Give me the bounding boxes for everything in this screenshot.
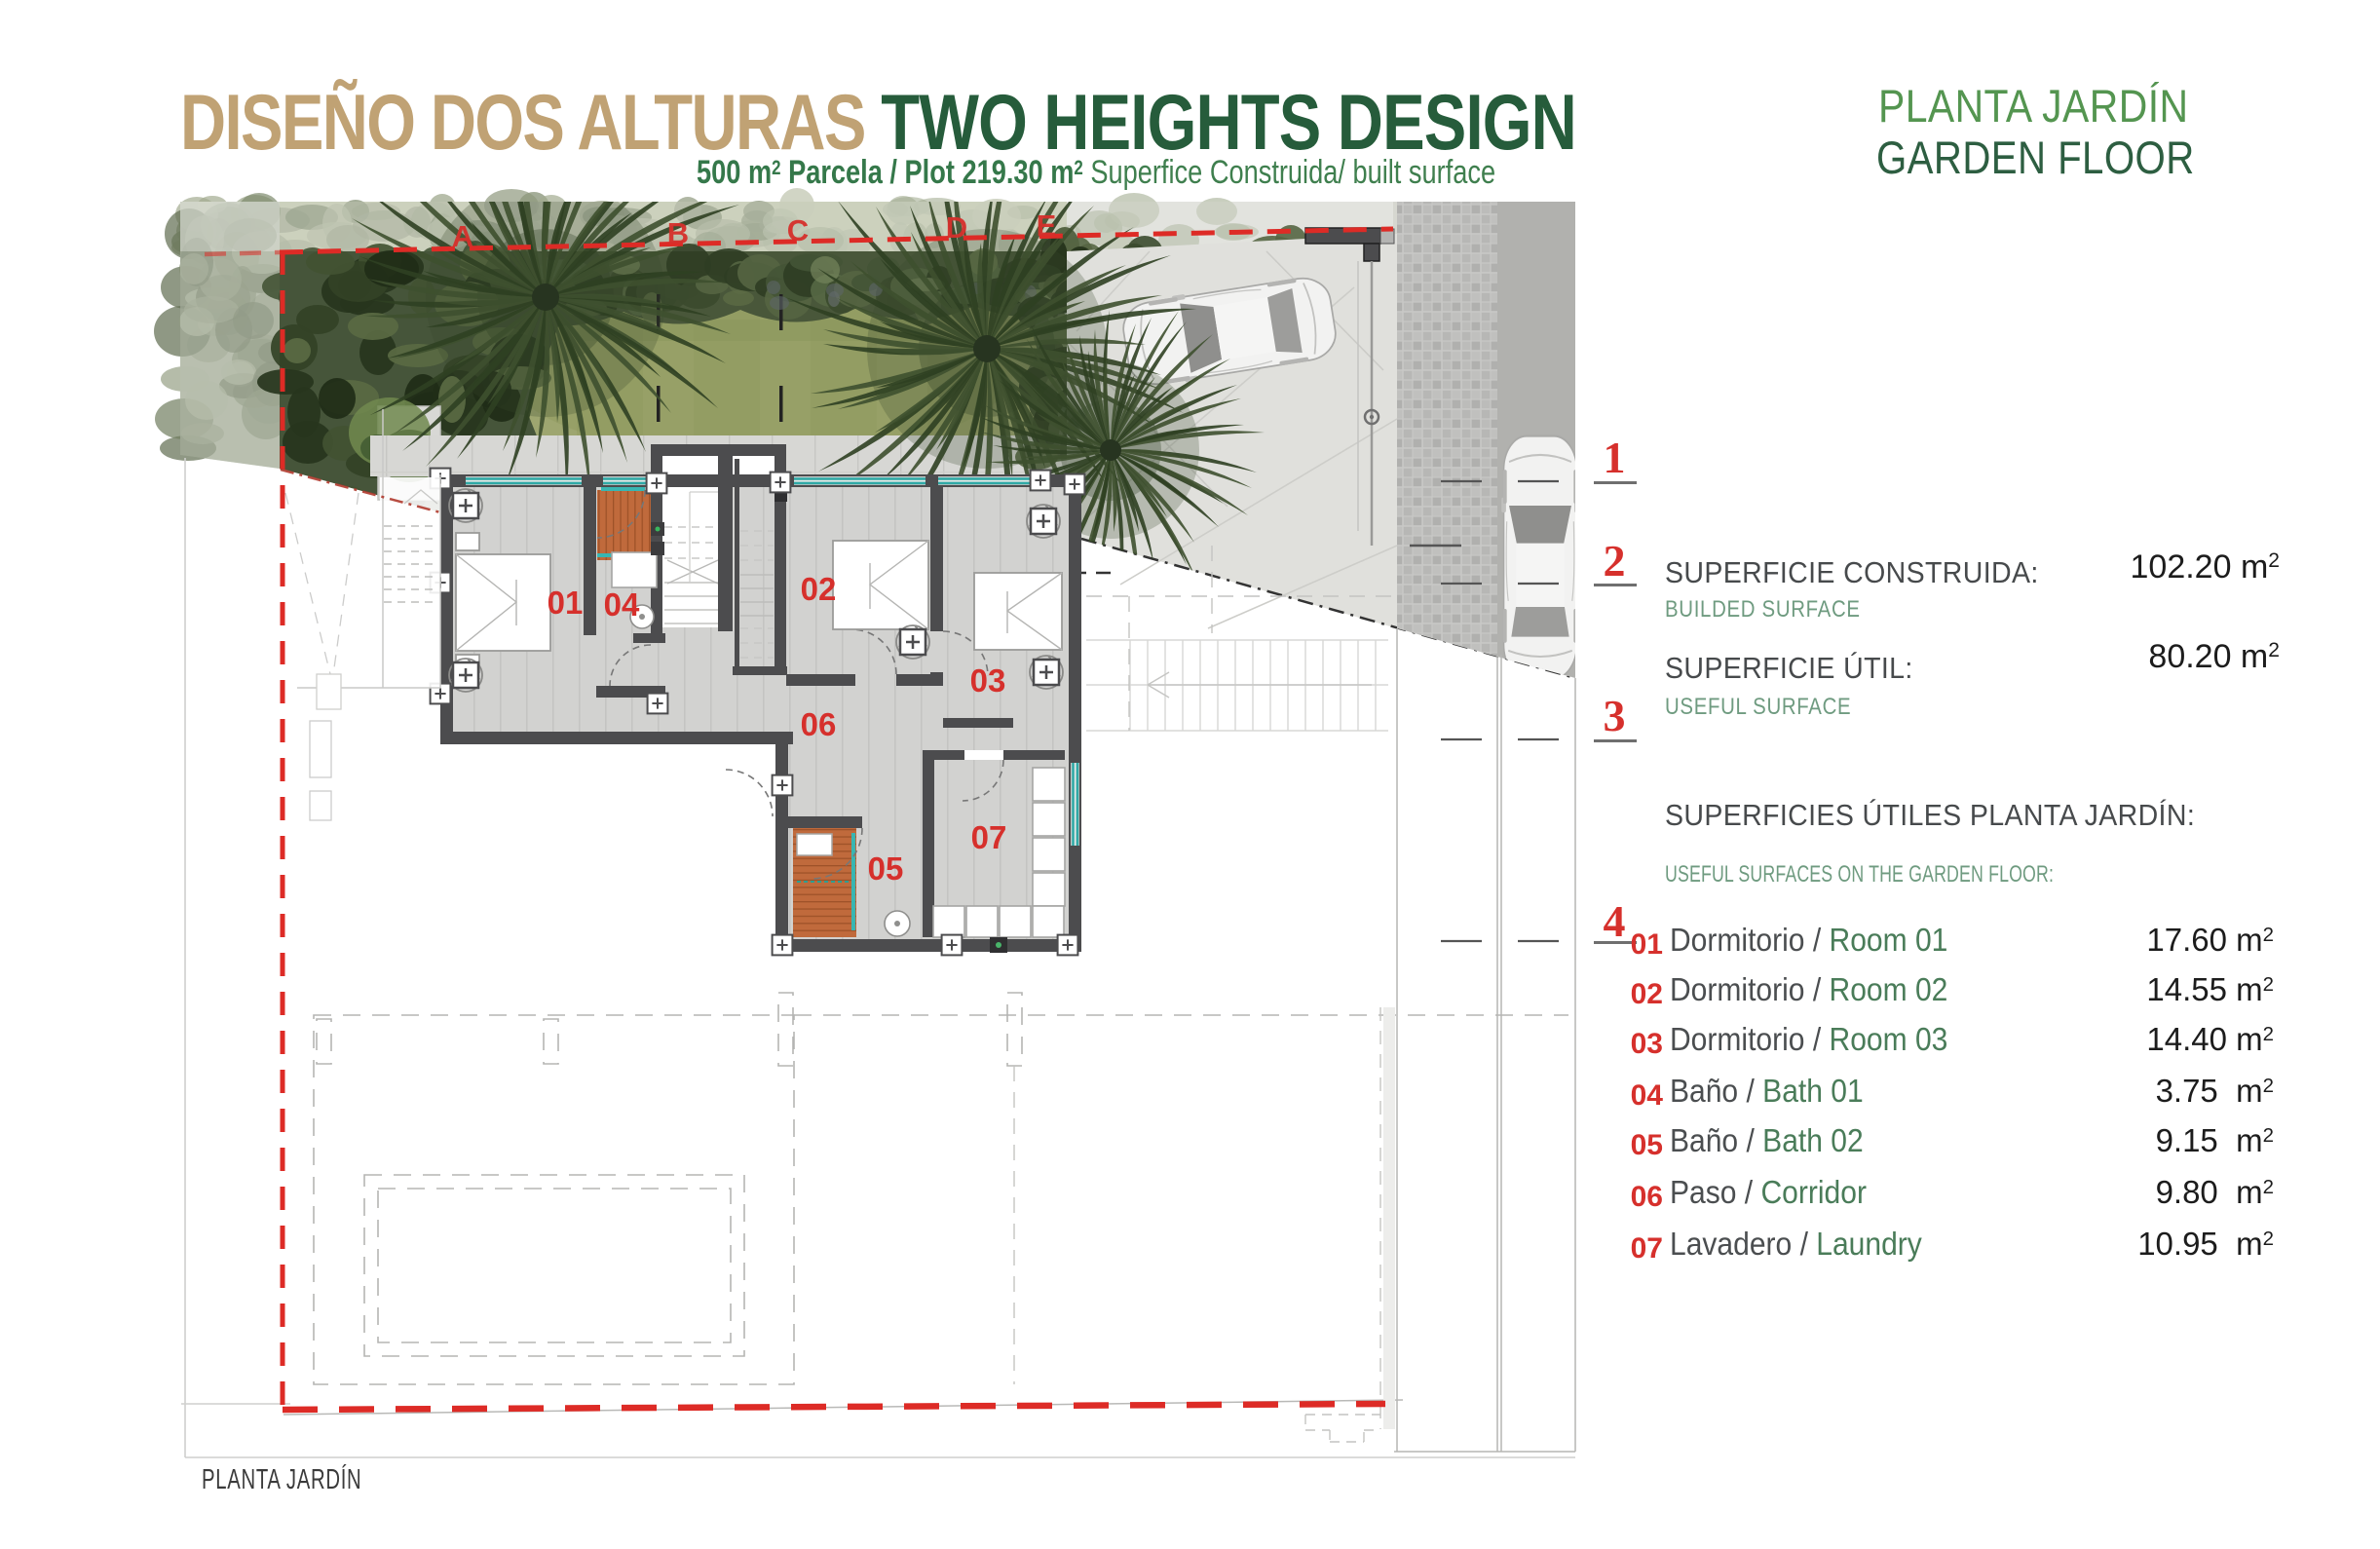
svg-text:07: 07	[971, 819, 1007, 855]
svg-text:A: A	[452, 219, 473, 253]
svg-text:05: 05	[868, 850, 904, 887]
svg-text:03: 03	[970, 662, 1006, 699]
svg-text:01: 01	[548, 585, 584, 621]
svg-text:D: D	[946, 210, 967, 245]
svg-text:04: 04	[604, 586, 640, 623]
svg-text:02: 02	[801, 571, 837, 607]
svg-text:B: B	[667, 216, 689, 250]
svg-text:06: 06	[801, 706, 837, 742]
svg-text:E: E	[1037, 208, 1057, 243]
svg-text:C: C	[787, 213, 809, 247]
